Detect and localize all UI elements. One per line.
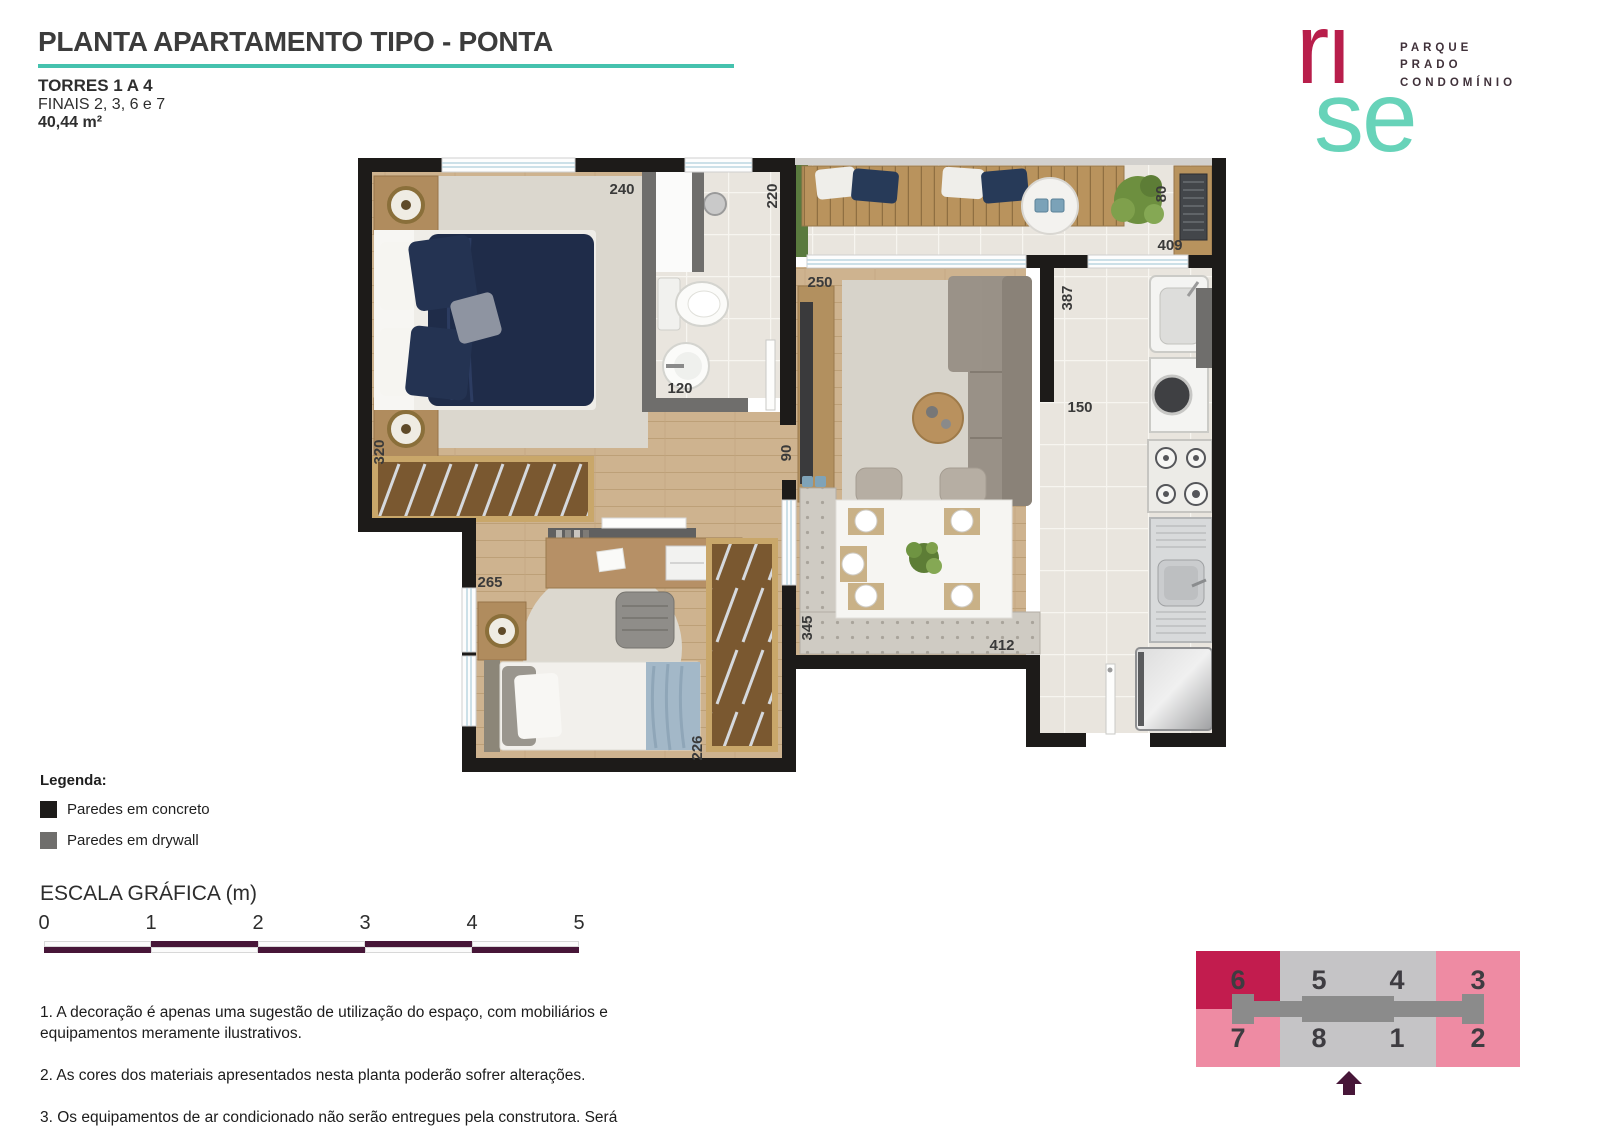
scale-tick: 3 — [359, 912, 370, 935]
desk-chair — [616, 592, 674, 648]
floor-plan: 240 220 320 120 90 250 80 409 387 150 26… — [350, 150, 1234, 778]
brand-words: PARQUE PRADO CONDOMÍNIO — [1400, 40, 1516, 92]
tv-console — [798, 286, 834, 502]
kitchen-sink — [1150, 518, 1212, 642]
stove — [1148, 440, 1212, 512]
legend-label: Paredes em drywall — [67, 832, 199, 849]
drywall-swatch — [40, 832, 57, 849]
dim-bedroom1-depth: 320 — [371, 439, 388, 464]
dim-kitchen-passage: 150 — [1067, 399, 1092, 416]
note-1: 1. A decoração é apenas uma sugestão de … — [40, 1002, 810, 1044]
finals-label: FINAIS 2, 3, 6 e 7 — [38, 96, 165, 114]
scale-tick: 0 — [38, 912, 49, 935]
north-arrow-icon — [1336, 1071, 1362, 1084]
toilet — [658, 278, 728, 330]
north-arrow-stem — [1343, 1084, 1355, 1095]
wardrobe — [372, 456, 594, 522]
dim-bedroom1-width: 240 — [609, 181, 634, 198]
washing-machine — [1150, 358, 1208, 432]
scale-tick: 1 — [145, 912, 156, 935]
coffee-table — [913, 393, 963, 443]
dim-dining-depth: 345 — [799, 615, 816, 640]
dim-grill-counter: 80 — [1153, 186, 1170, 203]
balcony-railing — [795, 158, 1212, 165]
dim-wardrobe-length: 226 — [689, 735, 706, 760]
dim-hall-width: 90 — [778, 445, 795, 462]
brand-word-condominio: CONDOMÍNIO — [1400, 75, 1516, 92]
legend-heading: Legenda: — [40, 772, 107, 789]
shower-box — [656, 172, 692, 272]
entry-door — [1106, 664, 1115, 734]
window — [1088, 255, 1188, 268]
title-underline — [38, 64, 734, 68]
legend-item-drywall: Paredes em drywall — [40, 832, 199, 849]
window — [685, 158, 752, 172]
nightstand — [478, 602, 526, 660]
legend-label: Paredes em concreto — [67, 801, 210, 818]
page-title: PLANTA APARTAMENTO TIPO - PONTA — [38, 26, 553, 58]
nightstand — [374, 176, 438, 234]
area-label: 40,44 m² — [38, 114, 102, 132]
dim-kitchen-depth: 387 — [1059, 285, 1076, 310]
balcony-round-table — [1022, 178, 1078, 234]
brand-word-prado: PRADO — [1400, 57, 1516, 74]
dim-tv-wall: 250 — [807, 274, 832, 291]
brand-word-parque: PARQUE — [1400, 40, 1516, 57]
dining-chair — [940, 468, 986, 504]
notes: 1. A decoração é apenas uma sugestão de … — [40, 981, 810, 1131]
scale-tick: 4 — [466, 912, 477, 935]
double-bed — [374, 230, 596, 410]
note-3: 3. Os equipamentos de ar condicionado nã… — [40, 1107, 810, 1131]
note-2: 2. As cores dos materiais apresentados n… — [40, 1065, 810, 1086]
towers-label: TORRES 1 A 4 — [38, 76, 153, 96]
scale-tick: 2 — [252, 912, 263, 935]
scale-tick: 5 — [573, 912, 584, 935]
concrete-swatch — [40, 801, 57, 818]
dim-bedroom2-width: 265 — [477, 574, 502, 591]
building-keyplan: 6 5 4 3 7 8 1 2 — [1196, 951, 1526, 1101]
legend-item-concrete: Paredes em concreto — [40, 801, 210, 818]
floor-plan-sheet: PLANTA APARTAMENTO TIPO - PONTA TORRES 1… — [0, 0, 1600, 1131]
keyplan-corridor-end — [1232, 994, 1254, 1024]
dim-bathroom-depth: 220 — [764, 183, 781, 208]
window — [807, 255, 1026, 268]
scale-title: ESCALA GRÁFICA (m) — [40, 882, 257, 906]
scale-ticks: 0 1 2 3 4 5 — [40, 912, 600, 936]
bathroom-door — [766, 340, 775, 410]
wardrobe — [706, 538, 778, 752]
keyplan-corridor-center — [1302, 996, 1394, 1022]
dim-balcony-length: 409 — [1157, 237, 1182, 254]
tv-icon — [800, 302, 813, 484]
dim-dining-width: 412 — [989, 637, 1014, 654]
window — [462, 588, 476, 652]
dim-bathroom-width: 120 — [667, 380, 692, 397]
keyplan-corridor-end — [1462, 994, 1484, 1024]
bedroom2-door — [602, 518, 686, 528]
window — [462, 656, 476, 726]
dining-chair — [856, 468, 902, 504]
scale-bar — [44, 941, 579, 953]
living-room — [798, 276, 1032, 506]
single-bed — [484, 660, 700, 752]
window — [782, 500, 796, 585]
window — [442, 158, 575, 172]
brand-logo: rı se PARQUE PRADO CONDOMÍNIO — [1288, 18, 1578, 188]
papers — [597, 548, 626, 571]
refrigerator — [1136, 648, 1212, 730]
